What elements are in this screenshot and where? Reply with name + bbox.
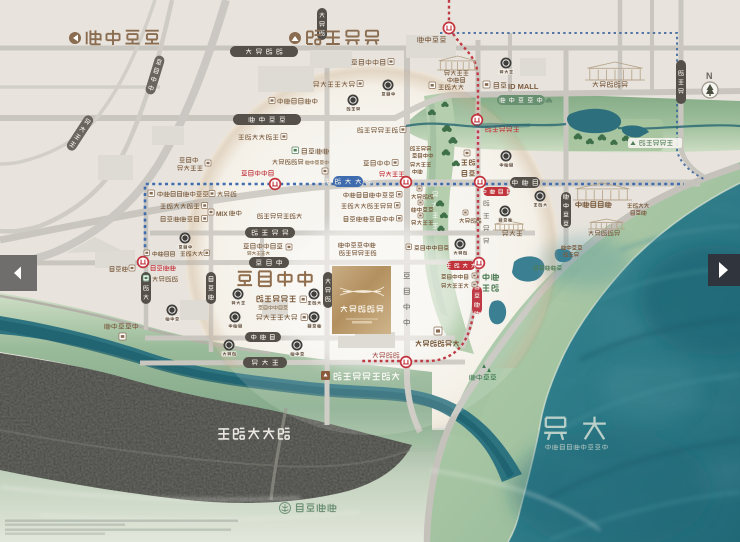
svg-text:MIX: MIX <box>216 211 228 218</box>
svg-text:N: N <box>706 71 713 81</box>
svg-text:ID MALL: ID MALL <box>508 82 539 91</box>
